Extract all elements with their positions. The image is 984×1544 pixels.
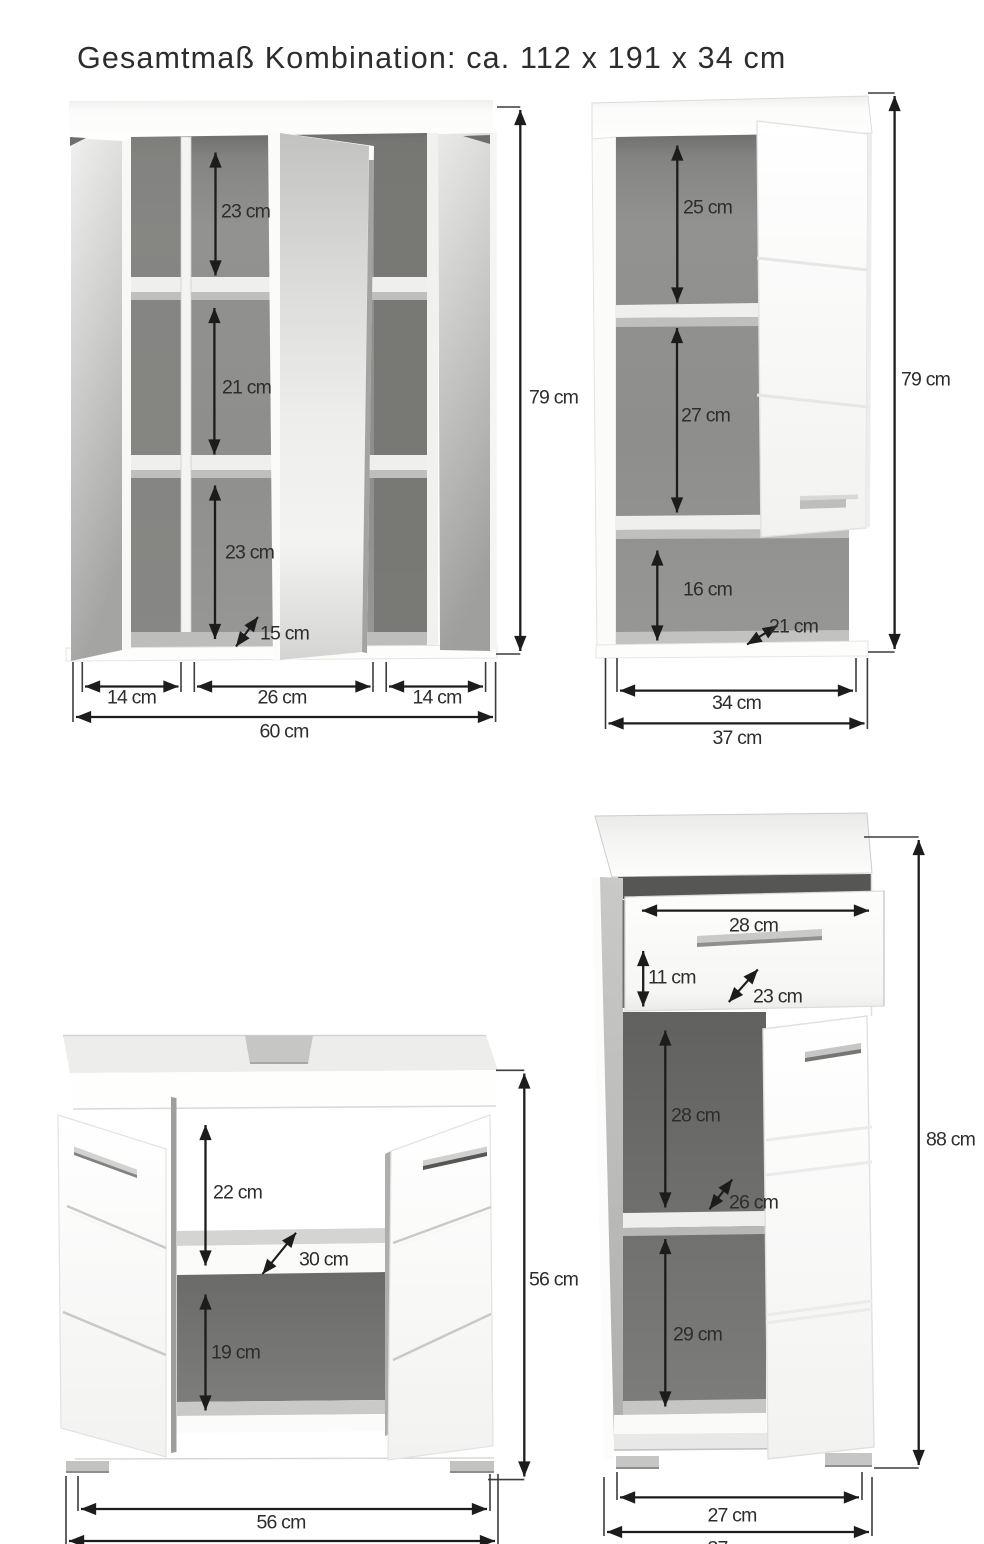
svg-text:23 cm: 23 cm [225, 542, 274, 564]
svg-text:60 cm: 60 cm [259, 721, 308, 743]
svg-text:88 cm: 88 cm [926, 1129, 975, 1151]
svg-text:11 cm: 11 cm [648, 967, 696, 989]
svg-text:30 cm: 30 cm [299, 1249, 348, 1271]
svg-text:29 cm: 29 cm [673, 1324, 722, 1346]
svg-text:79 cm: 79 cm [901, 369, 950, 391]
svg-text:27 cm: 27 cm [681, 405, 730, 427]
svg-text:22 cm: 22 cm [213, 1182, 262, 1204]
svg-text:79 cm: 79 cm [529, 387, 578, 409]
svg-text:19 cm: 19 cm [211, 1342, 260, 1364]
svg-text:26 cm: 26 cm [257, 687, 306, 709]
svg-text:23 cm: 23 cm [753, 986, 802, 1008]
svg-text:21 cm: 21 cm [769, 616, 818, 638]
svg-text:Gesamtmaß Kombination: ca. 112: Gesamtmaß Kombination: ca. 112 x 191 x 3… [77, 41, 786, 75]
svg-text:37 cm: 37 cm [712, 727, 761, 749]
svg-text:16 cm: 16 cm [683, 579, 732, 601]
svg-text:27 cm: 27 cm [707, 1505, 756, 1527]
svg-text:23 cm: 23 cm [221, 201, 270, 223]
svg-text:56 cm: 56 cm [256, 1512, 305, 1534]
svg-text:21 cm: 21 cm [222, 377, 271, 399]
svg-text:34 cm: 34 cm [712, 692, 761, 714]
svg-text:14 cm: 14 cm [107, 687, 156, 709]
svg-text:26 cm: 26 cm [729, 1192, 778, 1214]
svg-text:56 cm: 56 cm [529, 1269, 578, 1291]
svg-text:25 cm: 25 cm [683, 197, 732, 219]
svg-text:37 cm: 37 cm [707, 1538, 756, 1544]
svg-text:28 cm: 28 cm [729, 915, 778, 937]
svg-text:15 cm: 15 cm [260, 623, 309, 645]
svg-text:14 cm: 14 cm [412, 687, 461, 709]
svg-text:28 cm: 28 cm [671, 1105, 720, 1127]
